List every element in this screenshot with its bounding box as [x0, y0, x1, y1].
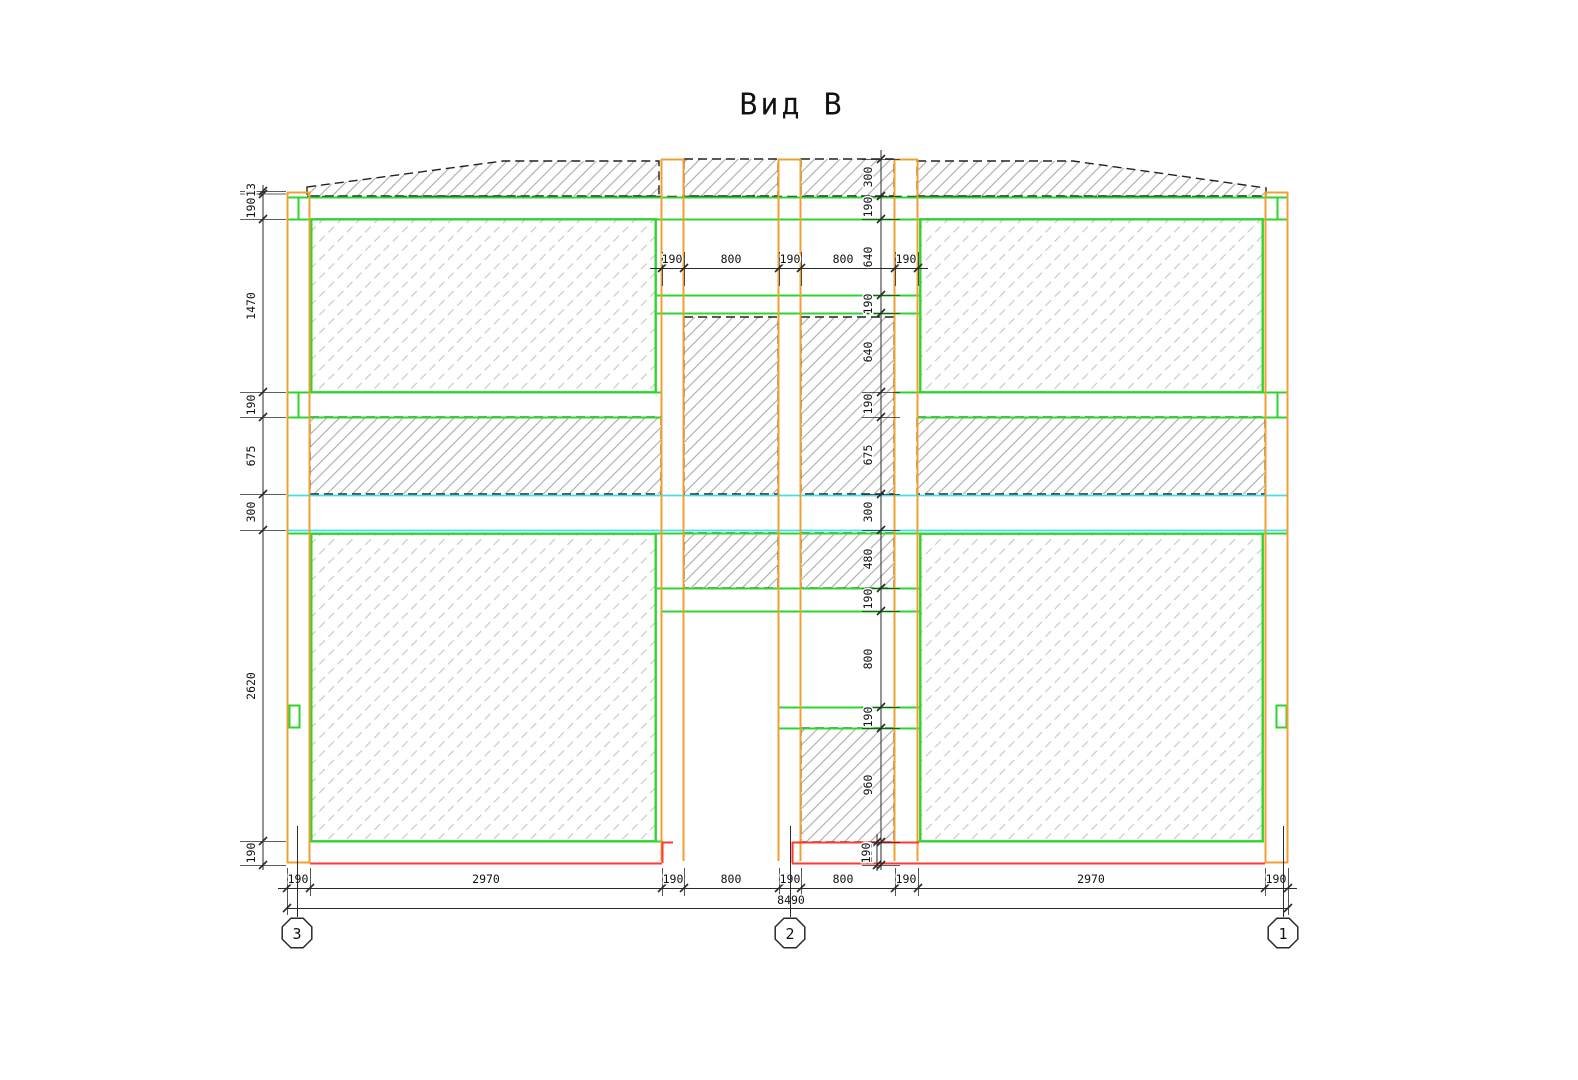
dim-label: 800 — [833, 872, 854, 886]
green-side-belts — [287, 393, 1288, 418]
dim-label: 190 — [663, 872, 684, 886]
axis-labels: 3 2 1 — [292, 925, 1287, 943]
axis-label-2: 2 — [785, 925, 794, 943]
dim-label: 190 — [861, 707, 875, 728]
dim-label: 640 — [861, 342, 875, 363]
axis-label-3: 3 — [292, 925, 301, 943]
dim-label: 190 — [244, 395, 258, 416]
dim-label: 190 — [896, 252, 917, 266]
dim-label: 190 — [861, 589, 875, 610]
pier-lower-2 — [801, 533, 894, 588]
pier-lower-1 — [684, 533, 778, 588]
base-left — [310, 842, 673, 864]
dim-label: 2970 — [1077, 872, 1105, 886]
dim-label: 190 — [288, 872, 309, 886]
dim-label: 480 — [861, 549, 875, 570]
pier-upper-1 — [684, 317, 778, 494]
dim-label: 2970 — [472, 872, 500, 886]
panel-lower-left — [311, 534, 656, 841]
green-wall-block-left — [290, 706, 300, 728]
panel-lower-right — [920, 534, 1263, 841]
dim-label: 300 — [861, 502, 875, 523]
band-left-675 — [310, 417, 661, 494]
elevation-view-b: Вид В — [0, 0, 1578, 1080]
dim-label: 300 — [244, 502, 258, 523]
dim-label: 640 — [861, 247, 875, 268]
pier-upper-2 — [801, 317, 894, 494]
dim-label: 190 — [861, 394, 875, 415]
dim-label-base: 190 — [859, 843, 873, 864]
band-right-675 — [917, 417, 1265, 494]
dim-label: 190 — [861, 294, 875, 315]
dim-label: 190 — [896, 872, 917, 886]
dim-label: 2620 — [244, 672, 258, 700]
parapet-left — [307, 161, 659, 196]
spandrel-center — [801, 728, 894, 842]
dim-label: 1470 — [244, 292, 258, 320]
dim-label: 675 — [244, 446, 258, 467]
parapet-center-1 — [684, 159, 778, 196]
parapet-center-2 — [801, 159, 894, 196]
panel-upper-left — [311, 219, 656, 392]
elevation-drawing-canvas: Вид В — [0, 0, 1578, 1080]
dim-labels-bottom: 190 2970 190 800 190 800 190 2970 190 84… — [288, 843, 1287, 907]
dim-label: 190 — [244, 843, 258, 864]
drawing-title: Вид В — [739, 88, 844, 123]
dim-label: 800 — [833, 252, 854, 266]
red-base-lines — [310, 842, 1265, 864]
dim-label-total: 8490 — [777, 893, 805, 907]
parapet-right — [917, 161, 1266, 196]
dim-label: 800 — [721, 872, 742, 886]
dim-label: 800 — [721, 252, 742, 266]
dim-labels-left: 13 190 1470 190 675 300 2620 190 — [244, 183, 258, 863]
wall-right — [1265, 192, 1288, 863]
dim-label: 300 — [861, 167, 875, 188]
dim-label: 190 — [662, 252, 683, 266]
dim-label: 13 — [244, 183, 258, 197]
axis-label-1: 1 — [1278, 925, 1287, 943]
dim-label: 190 — [244, 198, 258, 219]
green-wall-block-right — [1277, 706, 1287, 728]
slab-cyan-lines — [287, 496, 1288, 531]
dim-label: 190 — [780, 252, 801, 266]
dim-label: 960 — [861, 775, 875, 796]
dim-label: 800 — [861, 649, 875, 670]
dim-labels-top: 190 800 190 800 190 — [662, 252, 917, 266]
panel-upper-right — [920, 219, 1263, 392]
dim-label: 675 — [861, 445, 875, 466]
dim-label: 190 — [861, 197, 875, 218]
wall-left — [287, 192, 310, 863]
